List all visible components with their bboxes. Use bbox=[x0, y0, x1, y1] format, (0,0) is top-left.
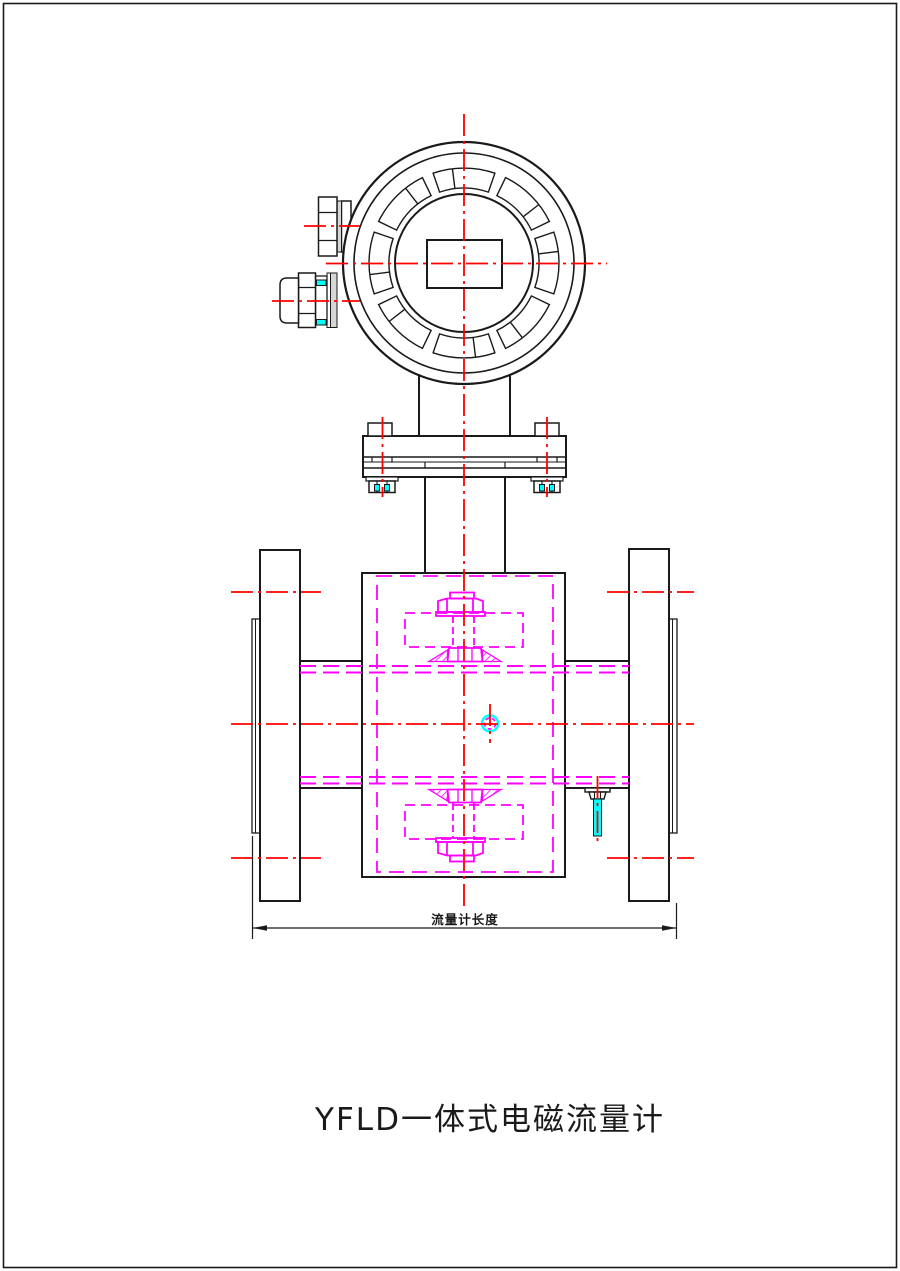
drawing-title: YFLD一体式电磁流量计 bbox=[314, 1102, 665, 1138]
gland-seal-upper-mark bbox=[317, 280, 327, 286]
gland-seal-lower-mark bbox=[317, 320, 327, 326]
drawing-sheet: 流量计长度 YFLD一体式电磁流量计 bbox=[0, 0, 900, 1271]
dimension-arrow-right bbox=[662, 925, 677, 931]
drawing-canvas: 流量计长度 YFLD一体式电磁流量计 bbox=[0, 0, 900, 1271]
dimension-label: 流量计长度 bbox=[431, 912, 499, 927]
flange-left bbox=[252, 550, 300, 901]
flange-right bbox=[629, 549, 677, 901]
dimension-arrow-left bbox=[253, 925, 268, 931]
